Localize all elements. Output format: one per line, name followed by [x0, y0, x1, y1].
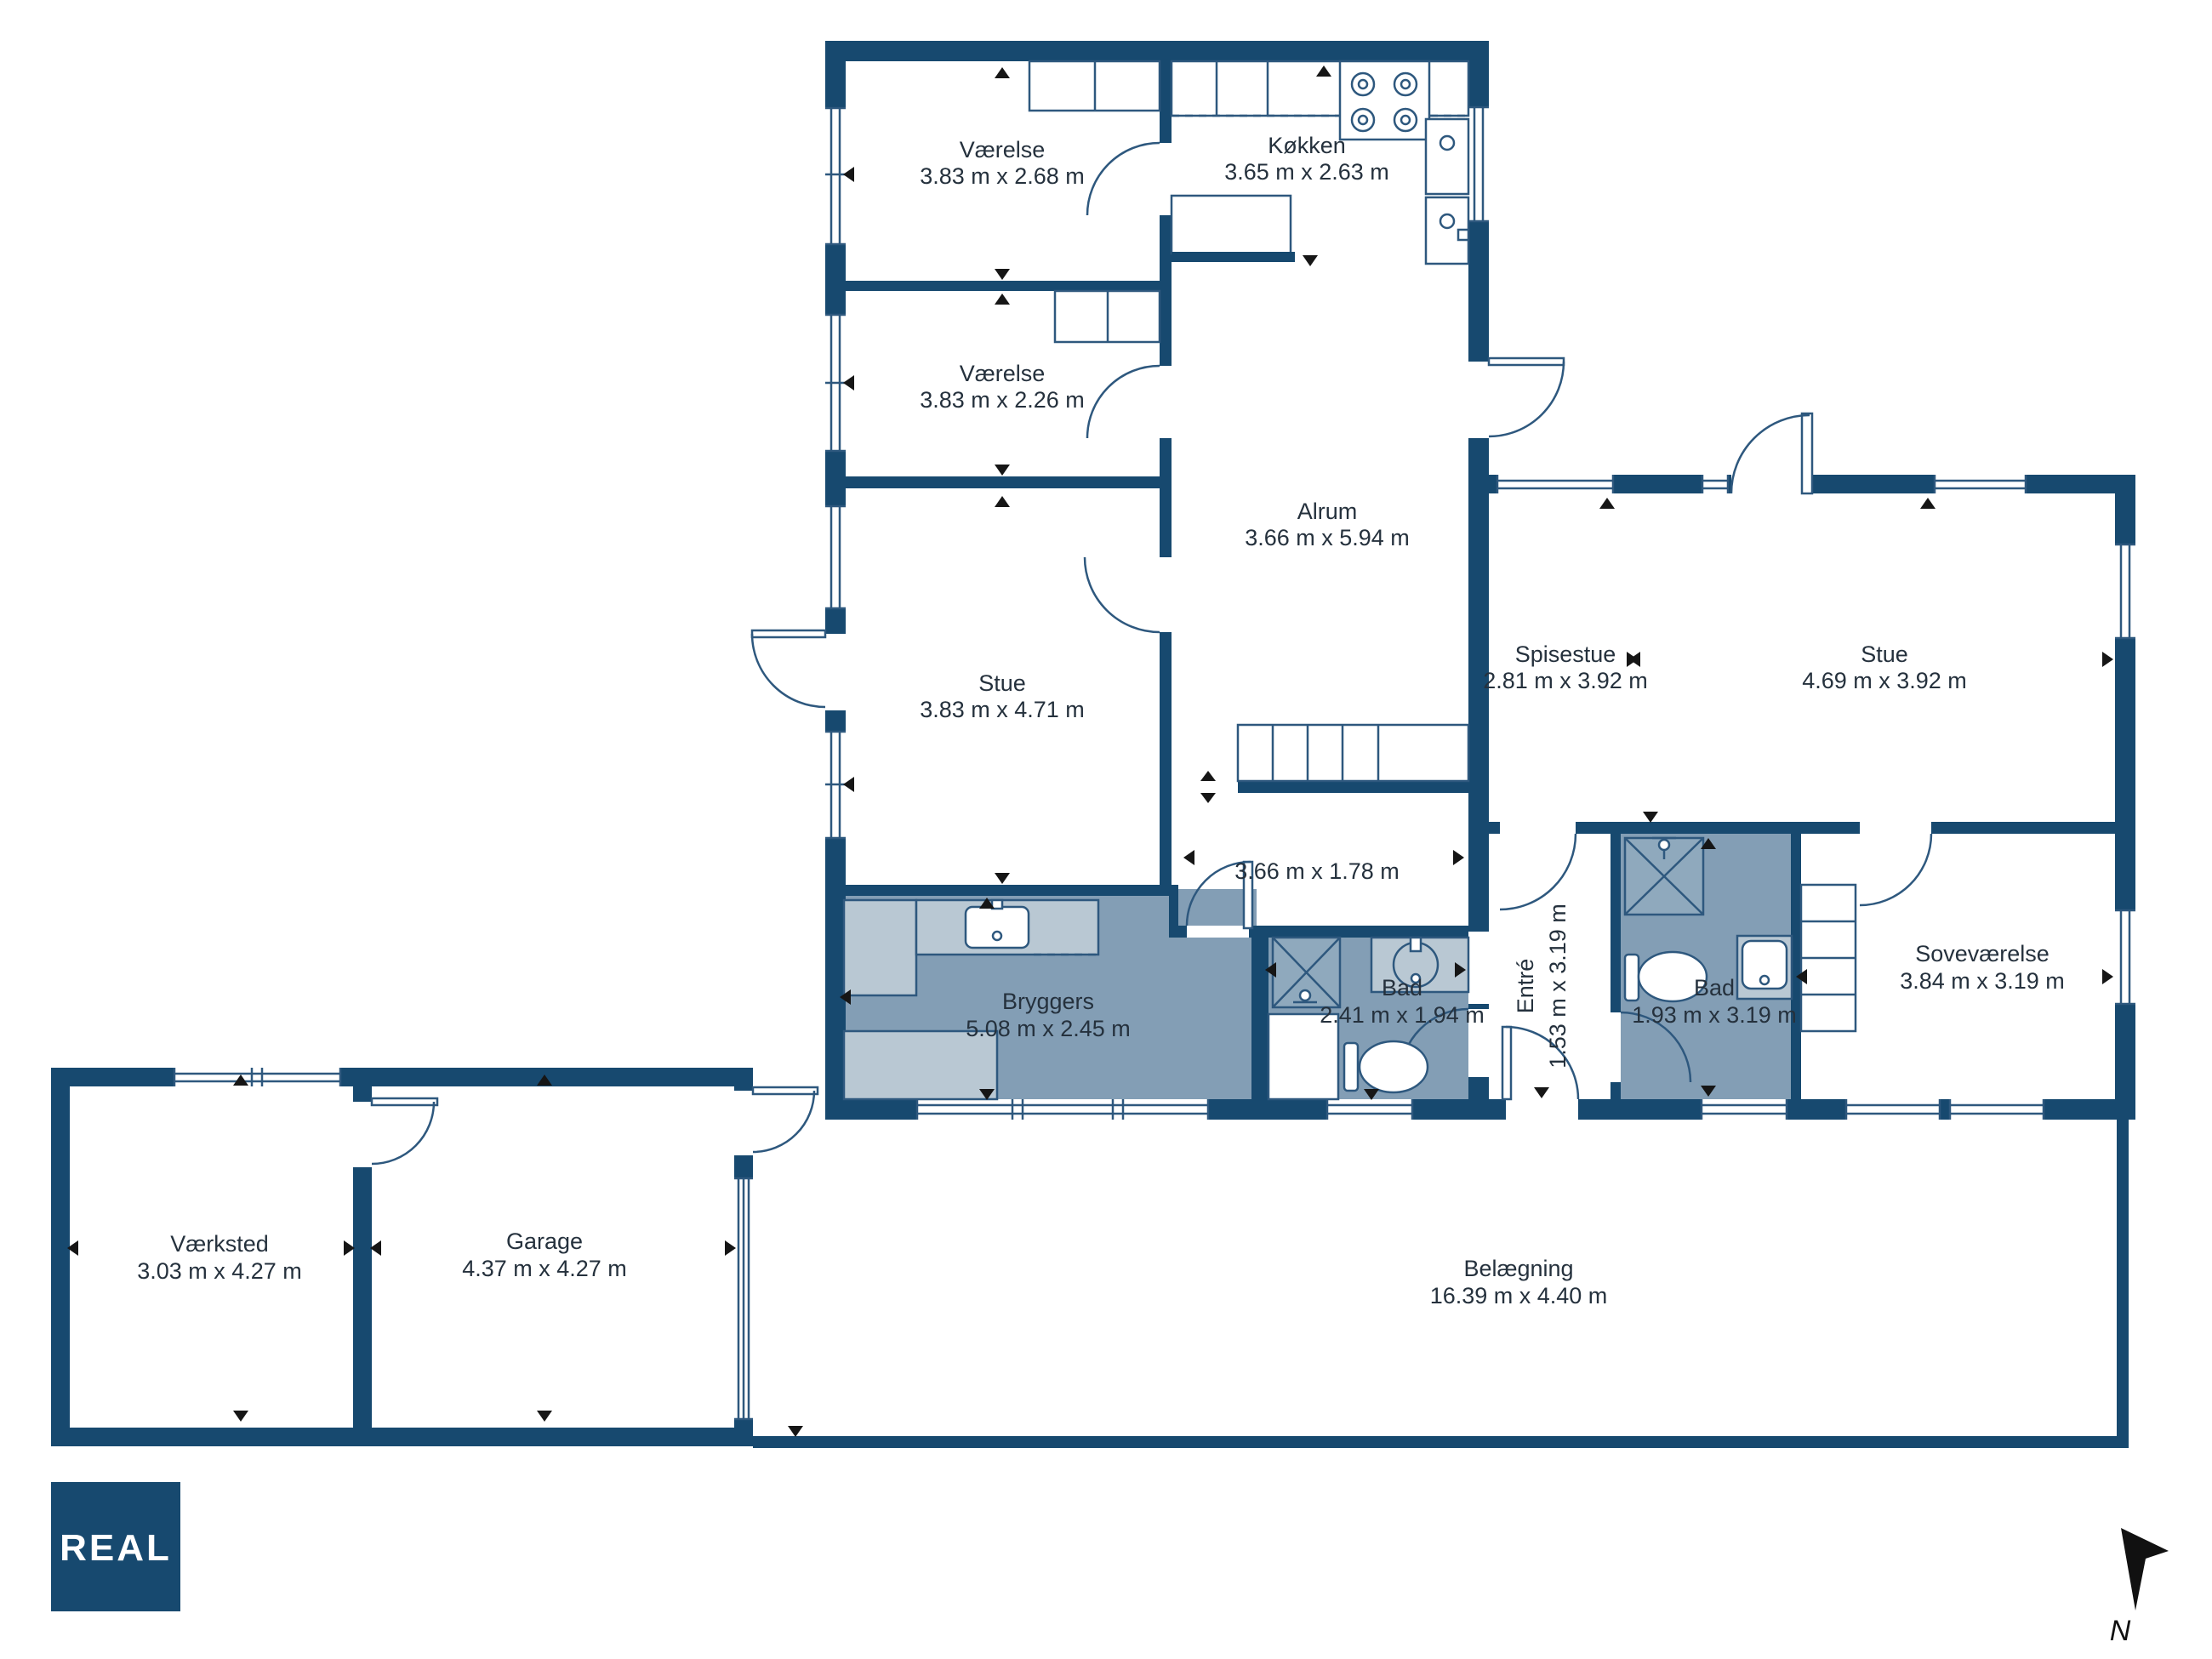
room-vaerelse-1: Værelse 3.83 m x 2.68 m: [920, 137, 1085, 189]
window: [2115, 544, 2135, 638]
room-name-label: Bryggers: [1002, 989, 1094, 1014]
room-dims-label: 2.41 m x 1.94 m: [1320, 1002, 1485, 1028]
room-name-label: Køkken: [1268, 133, 1346, 158]
window: [1702, 1099, 1787, 1120]
room-name-label: Garage: [506, 1229, 583, 1254]
room-name-label: Værelse: [960, 137, 1046, 162]
room-alrum: Alrum 3.66 m x 5.94 m: [1245, 499, 1410, 550]
room-dims-label: 3.65 m x 2.63 m: [1224, 159, 1389, 185]
room-vaerelse-2: Værelse 3.83 m x 2.26 m: [920, 361, 1085, 413]
sink-icon: [1737, 936, 1792, 999]
shower-icon: [1273, 938, 1340, 1007]
dimension-markers: [67, 66, 2113, 1437]
alrum-counter: [1238, 725, 1468, 781]
dishwasher-icon: [1426, 197, 1468, 264]
sink-icon: [966, 900, 1029, 948]
wardrobe: [1801, 885, 1856, 1031]
door: [1087, 366, 1172, 438]
window: [1950, 1099, 2044, 1120]
stove-icon: [1340, 61, 1429, 140]
room-name-label: Belægning: [1463, 1256, 1573, 1281]
window: [1327, 1099, 1412, 1120]
walls: [51, 41, 2135, 1448]
room-name-label: Entré: [1513, 959, 1538, 1014]
room-hall: 3.66 m x 1.78 m: [1234, 858, 1400, 884]
room-dims-label: 4.69 m x 3.92 m: [1802, 668, 1967, 693]
door: [1085, 557, 1172, 632]
window: [825, 506, 846, 608]
room-dims-label: 3.66 m x 1.78 m: [1234, 858, 1400, 884]
north-arrow-icon: N: [2110, 1528, 2169, 1647]
door: [1500, 822, 1576, 909]
room-dims-label: 5.08 m x 2.45 m: [966, 1016, 1131, 1041]
window: [1468, 107, 1489, 221]
door: [734, 1087, 818, 1155]
room-dims-label: 16.39 m x 4.40 m: [1430, 1283, 1608, 1308]
window: [1935, 475, 2026, 493]
room-name-label: Bad: [1694, 975, 1735, 1001]
room-name-label: Spisestue: [1515, 641, 1616, 667]
floor-plan: Værelse 3.83 m x 2.68 m Værelse 3.83 m x…: [0, 0, 2212, 1659]
room-dims-label: 1.93 m x 3.19 m: [1632, 1002, 1797, 1028]
north-label: N: [2110, 1615, 2131, 1647]
room-name-label: Stue: [1861, 641, 1908, 667]
room-name-label: Værksted: [170, 1231, 269, 1257]
shower-icon: [1625, 838, 1703, 915]
window: [825, 108, 846, 244]
room-dims-label: 3.66 m x 5.94 m: [1245, 525, 1410, 550]
sink-icon: [1426, 119, 1468, 194]
room-stue-left: Stue 3.83 m x 4.71 m: [920, 670, 1085, 722]
room-vaerksted: Værksted 3.03 m x 4.27 m: [137, 1231, 302, 1284]
door-exterior: [752, 630, 846, 710]
room-dims-label: 4.37 m x 4.27 m: [462, 1256, 627, 1281]
door: [1087, 143, 1172, 215]
door-exterior: [1468, 358, 1564, 438]
floor-plan-page: Værelse 3.83 m x 2.68 m Værelse 3.83 m x…: [0, 0, 2212, 1659]
logo: REAL: [51, 1482, 180, 1611]
room-name-label: Bad: [1382, 975, 1422, 1001]
toilet-icon: [1344, 1041, 1428, 1092]
window: [174, 1068, 340, 1086]
room-name-label: Alrum: [1297, 499, 1358, 524]
room-spisestue: Spisestue 2.81 m x 3.92 m: [1483, 641, 1648, 693]
logo-text: REAL: [60, 1527, 172, 1569]
room-dims-label: 3.03 m x 4.27 m: [137, 1258, 302, 1284]
room-stue-right: Stue 4.69 m x 3.92 m: [1802, 641, 1967, 693]
wardrobe: [1029, 61, 1160, 111]
room-entre: Entré 1.53 m x 3.19 m: [1513, 904, 1571, 1069]
room-dims-label: 3.84 m x 3.19 m: [1900, 968, 2065, 994]
window: [825, 732, 846, 838]
door: [353, 1098, 437, 1167]
window: [1702, 475, 1728, 493]
room-dims-label: 2.81 m x 3.92 m: [1483, 668, 1648, 693]
window: [917, 1099, 1208, 1120]
window: [825, 315, 846, 451]
room-dims-label: 3.83 m x 2.68 m: [920, 163, 1085, 189]
door-terrace: [1731, 413, 1812, 493]
room-dims-label: 1.53 m x 3.19 m: [1545, 904, 1571, 1069]
room-garage: Garage 4.37 m x 4.27 m: [462, 1229, 627, 1281]
room-name-label: Værelse: [960, 361, 1046, 386]
window: [1497, 475, 1613, 493]
wardrobe: [1055, 291, 1160, 342]
room-name-label: Stue: [978, 670, 1026, 696]
garage-door: [734, 1178, 753, 1419]
room-sovevaerelse: Soveværelse 3.84 m x 3.19 m: [1900, 941, 2065, 994]
passage: [1468, 932, 1489, 1004]
window: [1846, 1099, 1940, 1120]
window: [2115, 910, 2135, 1004]
room-name-label: Soveværelse: [1915, 941, 2050, 966]
room-dims-label: 3.83 m x 2.26 m: [920, 387, 1085, 413]
area-belaegning: Belægning 16.39 m x 4.40 m: [1430, 1256, 1608, 1308]
door: [1860, 822, 1931, 905]
room-dims-label: 3.83 m x 4.71 m: [920, 697, 1085, 722]
